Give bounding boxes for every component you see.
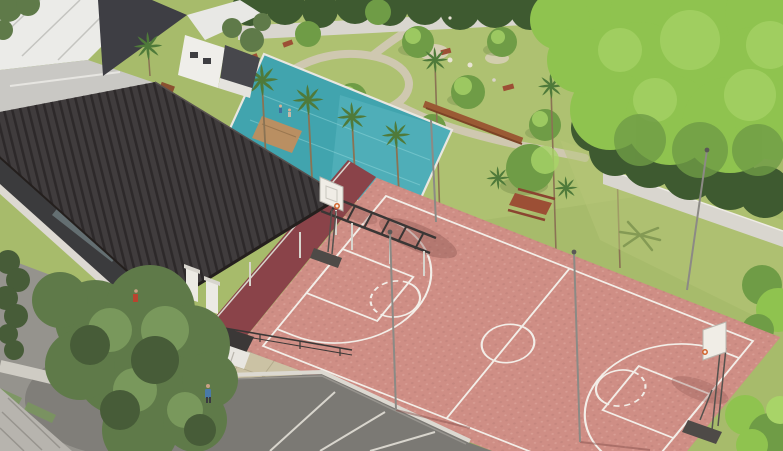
picnic-tree-highlight [531,146,559,174]
picnic-blanket [448,58,453,63]
aerial-rendering [0,0,783,451]
park-visitor [492,78,496,82]
park-visitor [448,16,451,19]
window [190,52,198,58]
picnic-blanket [468,63,473,68]
window [203,58,211,64]
scene-canvas [0,0,783,451]
